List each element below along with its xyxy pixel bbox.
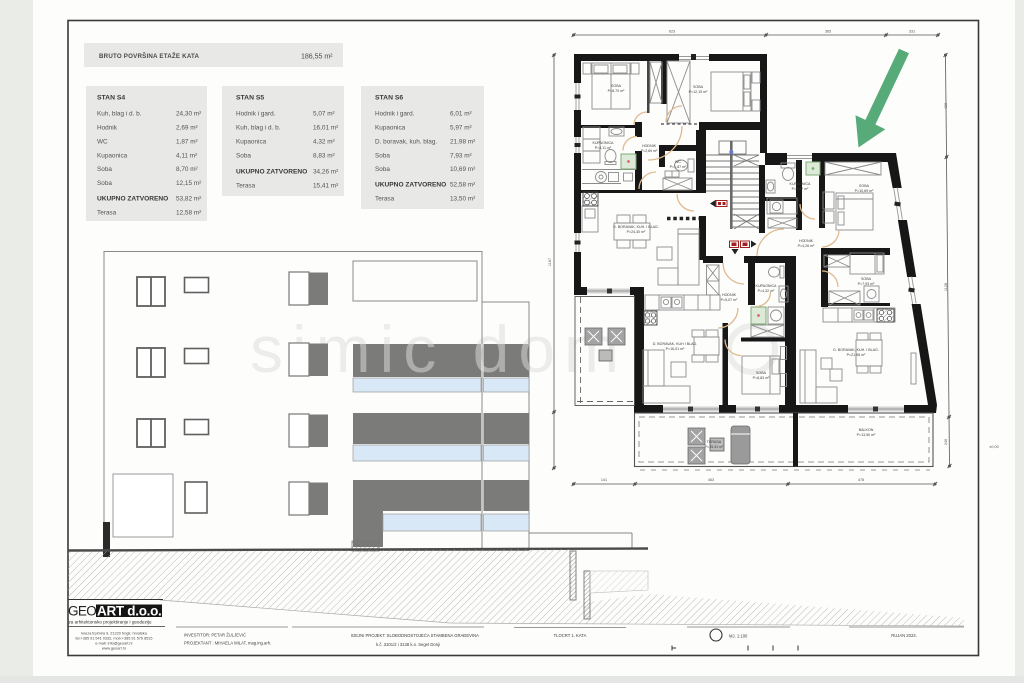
svg-text:SOBA: SOBA <box>861 277 872 281</box>
svg-text:1,87 m²: 1,87 m² <box>176 139 198 146</box>
svg-text:STAN S4: STAN S4 <box>97 95 125 102</box>
svg-text:Soba: Soba <box>236 153 251 160</box>
svg-text:P=1,87 m²: P=1,87 m² <box>670 165 687 169</box>
svg-text:P=2,69 m²: P=2,69 m² <box>641 149 658 153</box>
svg-text:KUPAONICA: KUPAONICA <box>756 284 778 288</box>
svg-text:Kupaonica: Kupaonica <box>375 125 406 132</box>
svg-text:PROJEKTANT : MIHAELA MILAT, ma: PROJEKTANT : MIHAELA MILAT, mag.ing.arh. <box>184 641 271 646</box>
svg-text:P=7,93 m²: P=7,93 m² <box>858 282 875 286</box>
svg-text:420: 420 <box>944 103 948 109</box>
svg-text:KUPAONICA: KUPAONICA <box>593 141 615 145</box>
svg-text:53,82 m²: 53,82 m² <box>176 195 201 202</box>
svg-text:P=5,97 m²: P=5,97 m² <box>792 187 809 191</box>
svg-text:P=4,32 m²: P=4,32 m² <box>758 289 775 293</box>
svg-text:WC: WC <box>97 139 108 146</box>
svg-text:P=24,30 m²: P=24,30 m² <box>627 230 646 234</box>
svg-text:RUJAN 2023.: RUJAN 2023. <box>891 633 917 638</box>
svg-text:KUPAONICA: KUPAONICA <box>790 182 812 186</box>
svg-text:TERASA: TERASA <box>707 440 722 444</box>
svg-text:34,26 m²: 34,26 m² <box>313 169 338 176</box>
svg-text:www.geoart.hr: www.geoart.hr <box>102 647 127 651</box>
svg-text:P=8,83 m²: P=8,83 m² <box>753 376 770 380</box>
svg-text:Soba: Soba <box>375 166 390 173</box>
svg-text:ART d.o.o.: ART d.o.o. <box>97 603 162 618</box>
svg-text:5,07 m²: 5,07 m² <box>313 111 335 118</box>
svg-text:8,83 m²: 8,83 m² <box>313 153 335 160</box>
svg-text:141: 141 <box>601 478 607 482</box>
svg-text:HODNIK: HODNIK <box>799 239 814 243</box>
svg-text:Terasa: Terasa <box>236 183 256 190</box>
svg-text:24,30 m²: 24,30 m² <box>176 111 201 118</box>
svg-text:Terasa: Terasa <box>375 195 395 202</box>
svg-text:Kuh, blag i d. b.: Kuh, blag i d. b. <box>97 111 142 118</box>
svg-text:k.č. 3101/2 i 3138 k.o. Seget: k.č. 3101/2 i 3138 k.o. Seget Donji <box>376 642 440 647</box>
svg-text:za arhitektonsko projektiranje: za arhitektonsko projektiranje i geodezi… <box>69 620 152 625</box>
svg-text:GEO: GEO <box>68 604 96 619</box>
svg-text:Soba: Soba <box>375 153 390 160</box>
svg-text:P=4,11 m²: P=4,11 m² <box>595 146 612 150</box>
svg-text:Hodnik: Hodnik <box>97 125 118 132</box>
svg-text:4,11 m²: 4,11 m² <box>176 153 197 160</box>
svg-text:Soba: Soba <box>97 180 112 187</box>
svg-text:240: 240 <box>944 439 948 445</box>
svg-text:P=10,69 m²: P=10,69 m² <box>855 189 874 193</box>
svg-text:HODNIK: HODNIK <box>642 144 657 148</box>
svg-text:P=8,70 m²: P=8,70 m² <box>608 89 625 93</box>
svg-text:Hodnik i gard.: Hodnik i gard. <box>375 111 415 118</box>
svg-text:P=4,26 m²: P=4,26 m² <box>798 244 815 248</box>
svg-text:623: 623 <box>669 30 675 34</box>
svg-text:P=15,41 m²: P=15,41 m² <box>705 445 724 449</box>
svg-text:4,32 m²: 4,32 m² <box>313 139 335 146</box>
svg-text:2,69 m²: 2,69 m² <box>176 125 198 132</box>
svg-text:Kuh, blag i d. b.: Kuh, blag i d. b. <box>236 125 281 132</box>
svg-text:Terasa: Terasa <box>97 209 117 216</box>
svg-text:Soba: Soba <box>97 166 112 173</box>
svg-text:SOBA: SOBA <box>611 84 622 88</box>
svg-text:Kupaonica: Kupaonica <box>97 153 128 160</box>
svg-text:UKUPNO ZATVORENO: UKUPNO ZATVORENO <box>236 169 307 176</box>
svg-text:331: 331 <box>909 30 915 34</box>
svg-text:P=5,07 m²: P=5,07 m² <box>721 298 738 302</box>
svg-text:BALKON: BALKON <box>859 428 874 432</box>
svg-text:186,55 m²: 186,55 m² <box>301 54 333 61</box>
svg-text:21,98 m²: 21,98 m² <box>450 139 475 146</box>
svg-text:D. BORAVAK, KUH. I BLAG.: D. BORAVAK, KUH. I BLAG. <box>613 225 659 229</box>
svg-text:478: 478 <box>858 478 864 482</box>
svg-text:13,50 m²: 13,50 m² <box>450 195 475 202</box>
svg-text:1128: 1128 <box>944 283 948 291</box>
svg-text:D. BORAVAK, KUH I BLAG.: D. BORAVAK, KUH I BLAG. <box>653 342 698 346</box>
svg-text:7,93 m²: 7,93 m² <box>450 153 472 160</box>
svg-text:Hodnik i gard.: Hodnik i gard. <box>236 111 276 118</box>
svg-text:e-mail: info@geoart.hr: e-mail: info@geoart.hr <box>95 642 133 646</box>
svg-text:kneza trpimira 9, 21220 trogir: kneza trpimira 9, 21220 trogir, hrvatska <box>81 632 148 636</box>
svg-text:WC: WC <box>675 160 681 164</box>
svg-text:SOBA: SOBA <box>859 184 870 188</box>
svg-text:SOBA: SOBA <box>756 371 767 375</box>
svg-text:365: 365 <box>825 30 831 34</box>
svg-text:MJ. 1:100: MJ. 1:100 <box>729 634 748 639</box>
svg-text:IDEJNI PROJEKT: SLOBODNOSTOJEĆ: IDEJNI PROJEKT: SLOBODNOSTOJEĆA STAMBENA… <box>351 633 479 638</box>
svg-text:P=12,15 m²: P=12,15 m² <box>689 90 708 94</box>
svg-text:tel:+385 91 541 0332, mob:+385: tel:+385 91 541 0332, mob:+385 91 576 85… <box>75 637 152 641</box>
svg-text:16,01 m²: 16,01 m² <box>313 125 338 132</box>
svg-text:15,41 m²: 15,41 m² <box>313 183 338 190</box>
svg-text:10,69 m²: 10,69 m² <box>450 166 475 173</box>
svg-text:D. BORAVAK, KUH. I BLAG.: D. BORAVAK, KUH. I BLAG. <box>833 348 879 352</box>
svg-text:BRUTO POVRŠINA ETAŽE KATA: BRUTO POVRŠINA ETAŽE KATA <box>99 52 200 60</box>
svg-text:Kupaonica: Kupaonica <box>236 139 267 146</box>
svg-text:P=13,50 m²: P=13,50 m² <box>857 433 876 437</box>
svg-text:HODNIK: HODNIK <box>722 293 737 297</box>
svg-text:INVESTITOR: PETAR ŽULJEVIĆ: INVESTITOR: PETAR ŽULJEVIĆ <box>184 633 246 638</box>
svg-text:SOBA: SOBA <box>693 85 704 89</box>
svg-text:TLOCRT 1. KATA: TLOCRT 1. KATA <box>554 633 587 638</box>
svg-text:5,97 m²: 5,97 m² <box>450 125 472 132</box>
svg-text:12,58 m²: 12,58 m² <box>176 209 201 216</box>
svg-text:52,58 m²: 52,58 m² <box>450 181 475 188</box>
svg-text:1167: 1167 <box>548 258 552 266</box>
svg-text:P=21,98 m²: P=21,98 m² <box>847 353 866 357</box>
svg-text:12,15 m²: 12,15 m² <box>176 180 201 187</box>
svg-text:UKUPNO ZATVORENO: UKUPNO ZATVORENO <box>375 181 446 188</box>
svg-text:P=16,01 m²: P=16,01 m² <box>666 347 685 351</box>
svg-text:STAN S5: STAN S5 <box>236 95 264 102</box>
svg-text:8,70 m²: 8,70 m² <box>176 166 198 173</box>
svg-text:UKUPNO ZATVORENO: UKUPNO ZATVORENO <box>97 195 168 202</box>
svg-text:6,01 m²: 6,01 m² <box>450 111 472 118</box>
svg-text:463: 463 <box>708 478 714 482</box>
svg-text:D. boravak, kuh. blag.: D. boravak, kuh. blag. <box>375 139 437 146</box>
svg-text:STAN S6: STAN S6 <box>375 95 403 102</box>
svg-text:±0,00: ±0,00 <box>989 445 998 449</box>
